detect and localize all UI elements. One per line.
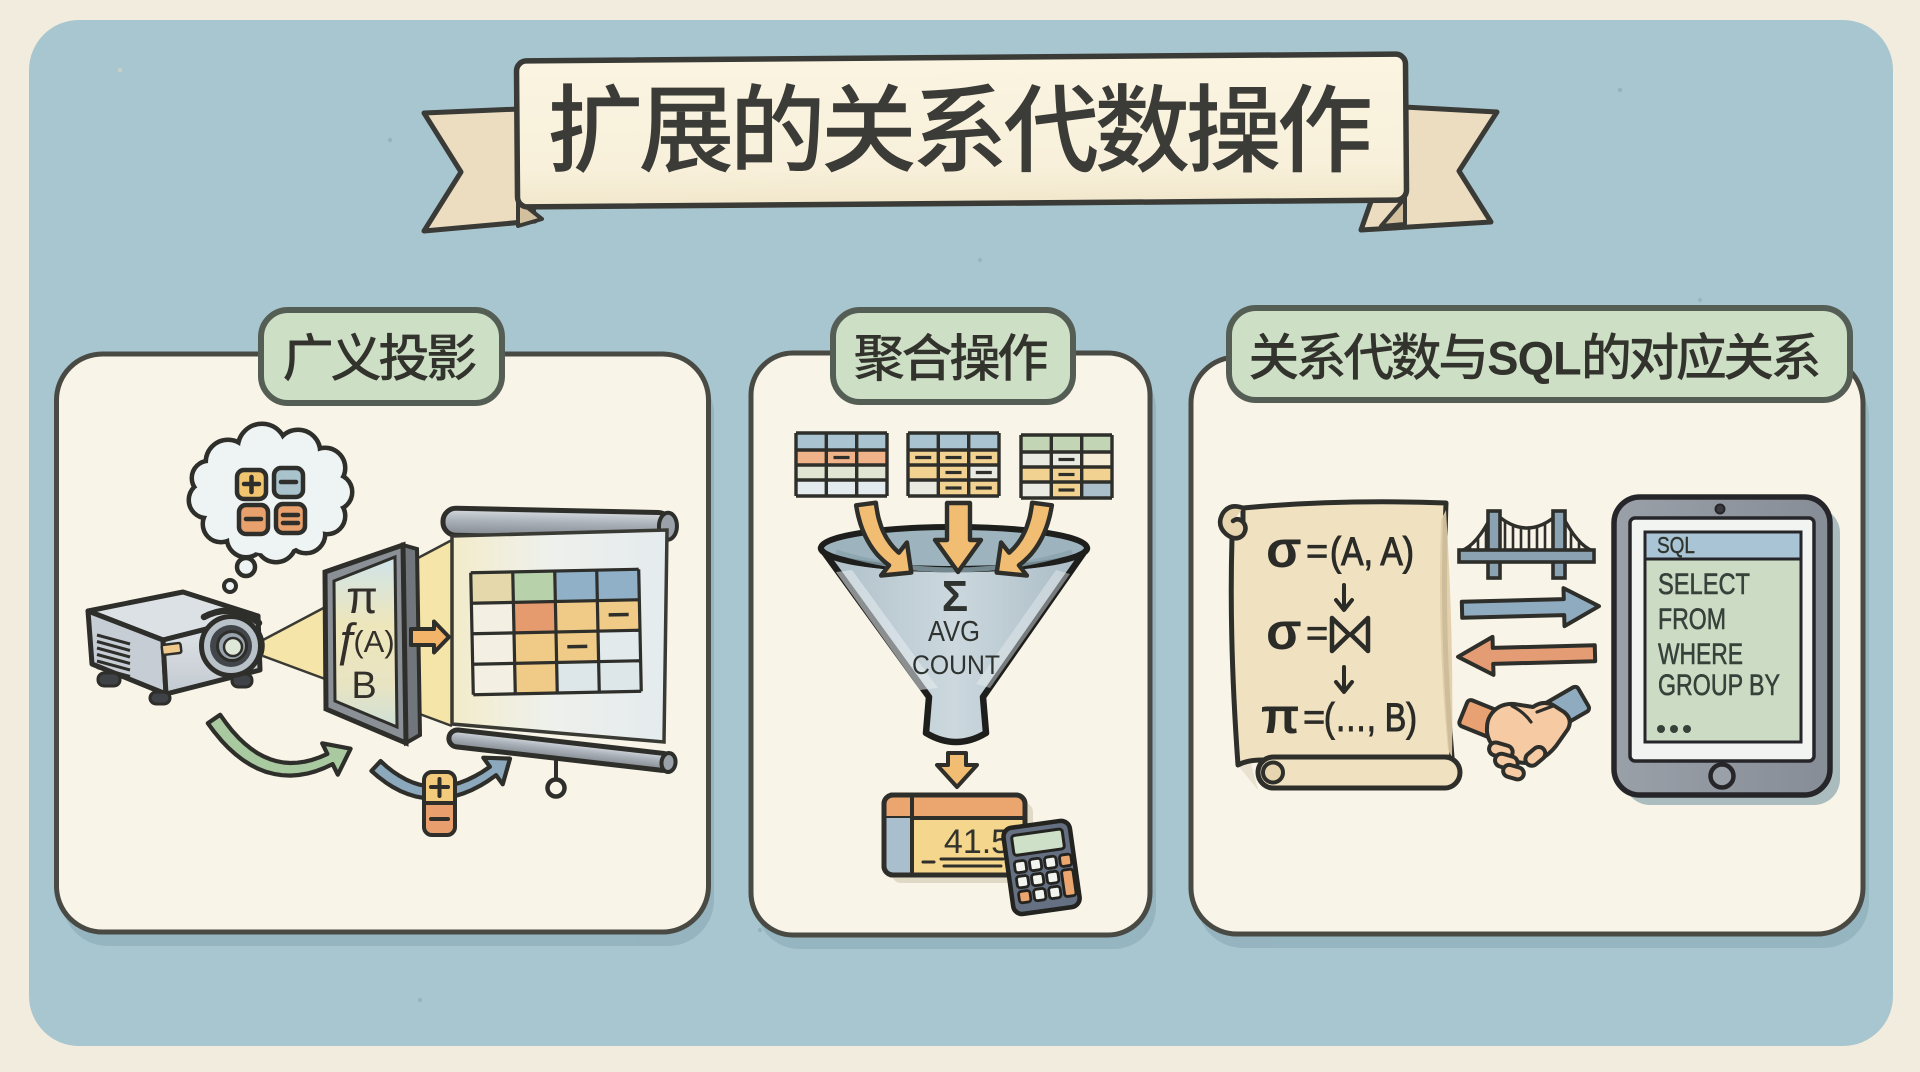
svg-text:FROM: FROM [1658, 603, 1726, 636]
svg-text:σ: σ [1266, 603, 1302, 661]
svg-text:Σ: Σ [942, 572, 968, 621]
svg-text:σ: σ [1266, 521, 1302, 579]
svg-text:(…, B): (…, B) [1324, 696, 1417, 740]
svg-text:(A): (A) [353, 624, 394, 659]
svg-text:COUNT: COUNT [912, 650, 1000, 680]
svg-text:=: = [1306, 613, 1328, 655]
svg-text:SQL: SQL [1657, 532, 1695, 558]
svg-text:=: = [1306, 531, 1328, 573]
svg-text:=: = [1303, 697, 1325, 739]
svg-text:B: B [351, 665, 376, 707]
svg-text:AVG: AVG [928, 616, 980, 648]
svg-text:(A, A): (A, A) [1330, 530, 1414, 574]
svg-text:SELECT: SELECT [1658, 568, 1750, 601]
svg-text:SQL: SQL [1487, 332, 1581, 384]
svg-text:π: π [1261, 688, 1299, 744]
svg-text:41.5: 41.5 [944, 823, 1010, 861]
svg-text:WHERE: WHERE [1658, 638, 1743, 671]
svg-text:GROUP BY: GROUP BY [1658, 669, 1780, 702]
